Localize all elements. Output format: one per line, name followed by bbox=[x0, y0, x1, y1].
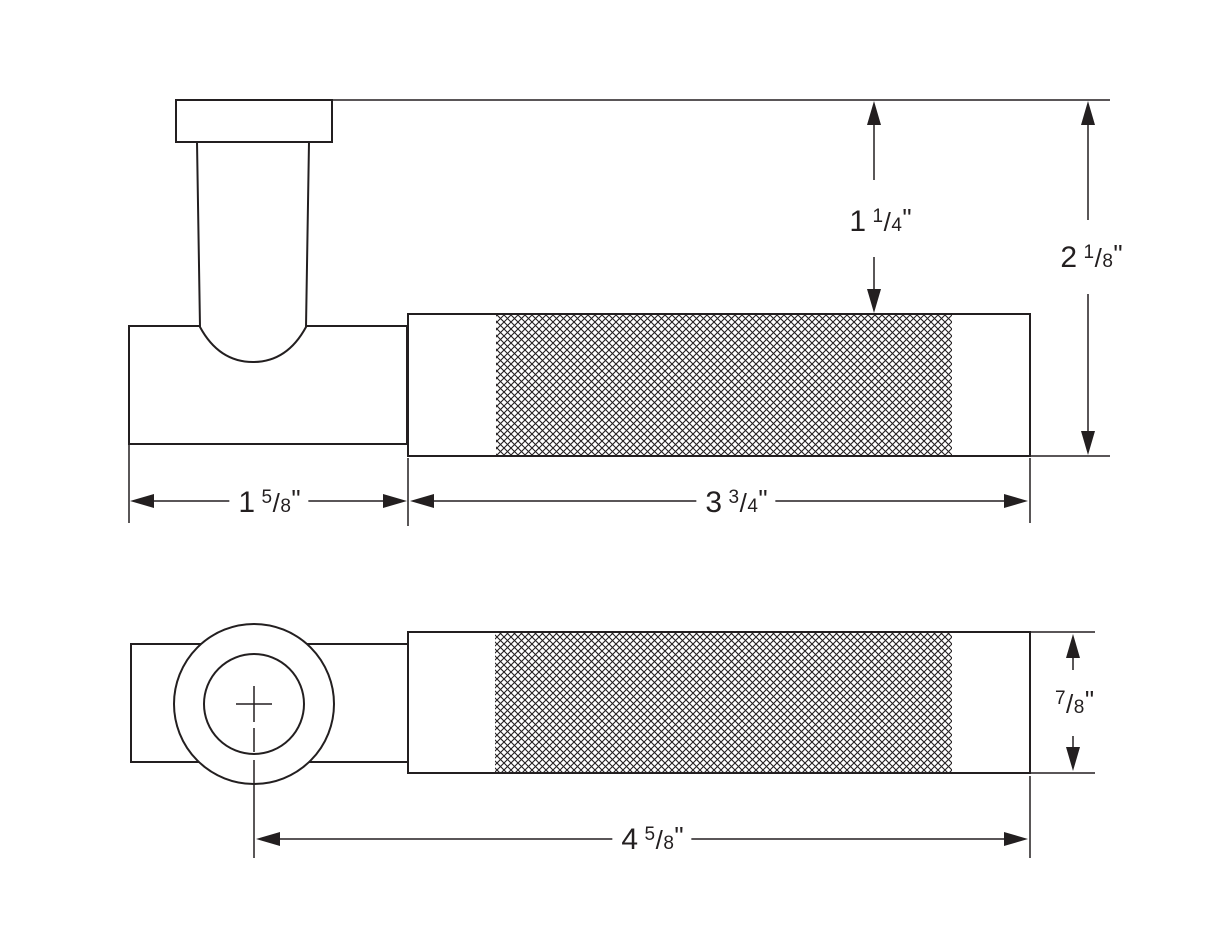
grip-knurl-texture bbox=[496, 314, 952, 456]
arrowhead-up-icon bbox=[1066, 634, 1080, 658]
lever-handle-drawing bbox=[0, 0, 1214, 945]
dim-overall-height-label: 21/8" bbox=[1051, 241, 1130, 273]
dim-denominator: 8 bbox=[280, 496, 291, 517]
fraction-slash: / bbox=[273, 488, 281, 518]
inch-mark: " bbox=[1085, 685, 1093, 715]
arrowhead-down-icon bbox=[1081, 431, 1095, 455]
dim-grip-diameter-label: 7/8" bbox=[1046, 687, 1102, 719]
arrowhead-up-icon bbox=[1081, 101, 1095, 125]
dim-overall-length-label: 45/8" bbox=[612, 823, 691, 855]
arrowhead-left-icon bbox=[410, 494, 434, 508]
dim-whole: 1 bbox=[238, 486, 255, 519]
arrowhead-up-icon bbox=[867, 101, 881, 125]
arrowhead-down-icon bbox=[867, 289, 881, 313]
arrowhead-right-icon bbox=[383, 494, 407, 508]
dim-denominator: 4 bbox=[747, 496, 758, 517]
arrowhead-left-icon bbox=[256, 832, 280, 846]
fraction-slash: / bbox=[1066, 689, 1074, 719]
arrowhead-right-icon bbox=[1004, 494, 1028, 508]
dim-whole: 3 bbox=[705, 486, 722, 519]
inch-mark: " bbox=[1113, 239, 1121, 269]
side-view bbox=[129, 100, 1110, 526]
dim-whole: 4 bbox=[621, 823, 638, 856]
fraction-slash: / bbox=[740, 488, 748, 518]
dim-numerator: 5 bbox=[262, 487, 273, 508]
post-stem bbox=[197, 142, 309, 362]
dim-post-to-grip-height-label: 11/4" bbox=[840, 205, 919, 237]
technical-drawing-canvas: 11/4" 21/8" 15/8" 33/4" 7/8" 45/8" bbox=[0, 0, 1214, 945]
arrowhead-down-icon bbox=[1066, 747, 1080, 771]
dim-denominator: 8 bbox=[1102, 251, 1113, 272]
inch-mark: " bbox=[291, 484, 299, 514]
inch-mark: " bbox=[758, 484, 766, 514]
dim-denominator: 8 bbox=[1074, 697, 1085, 718]
dim-numerator: 1 bbox=[873, 206, 884, 227]
dim-whole: 2 bbox=[1060, 241, 1077, 274]
arrowhead-right-icon bbox=[1004, 832, 1028, 846]
post-cap bbox=[176, 100, 332, 142]
inch-mark: " bbox=[902, 203, 910, 233]
fraction-slash: / bbox=[656, 825, 664, 855]
inch-mark: " bbox=[674, 821, 682, 851]
dim-denominator: 4 bbox=[891, 215, 902, 236]
dim-denominator: 8 bbox=[663, 833, 674, 854]
dim-grip-length-label: 33/4" bbox=[696, 486, 775, 518]
dim-hub-length-label: 15/8" bbox=[229, 486, 308, 518]
dim-whole: 1 bbox=[849, 205, 866, 238]
dim-numerator: 1 bbox=[1084, 242, 1095, 263]
arrowhead-left-icon bbox=[130, 494, 154, 508]
fraction-slash: / bbox=[884, 207, 892, 237]
grip-knurl-texture bbox=[495, 632, 952, 773]
dim-numerator: 3 bbox=[729, 487, 740, 508]
fraction-slash: / bbox=[1095, 243, 1103, 273]
dim-numerator: 5 bbox=[645, 824, 656, 845]
dim-numerator: 7 bbox=[1055, 688, 1066, 709]
